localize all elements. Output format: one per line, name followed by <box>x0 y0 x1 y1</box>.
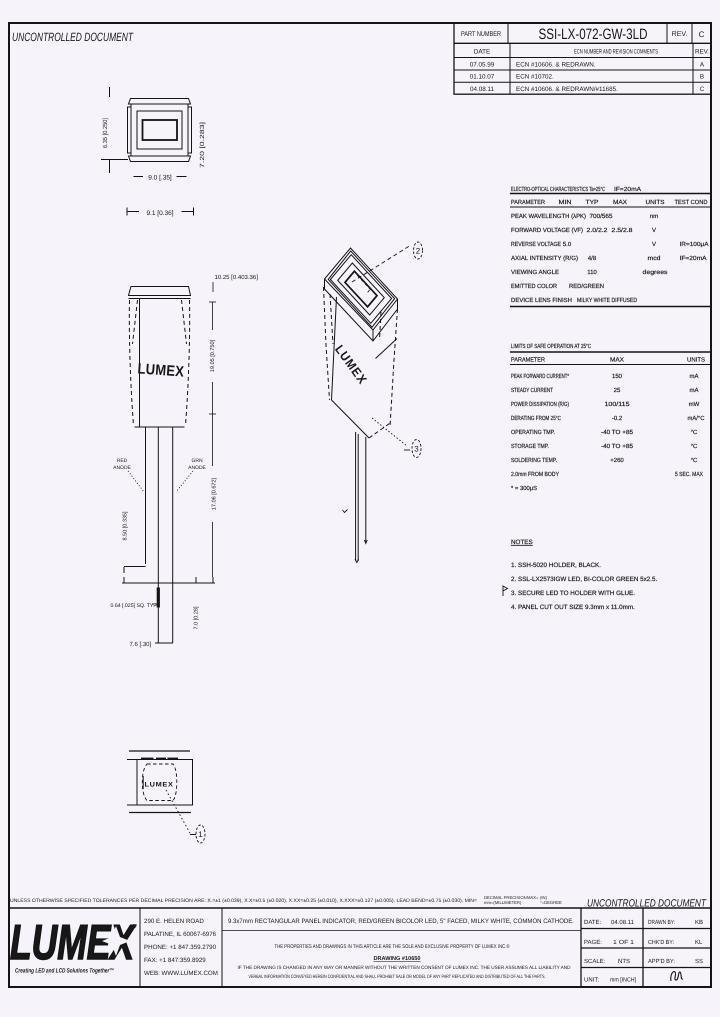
svg-text:700/565: 700/565 <box>590 213 614 220</box>
svg-text:ELECTRO-OPTICAL CHARACTERISTIC: ELECTRO-OPTICAL CHARACTERISTICS Ta=25°C <box>511 186 605 193</box>
svg-text:2.0/2.2: 2.0/2.2 <box>587 227 609 234</box>
svg-text:REV.: REV. <box>672 31 688 38</box>
svg-text:degrees: degrees <box>643 269 668 276</box>
svg-text:PARAMETER: PARAMETER <box>511 357 546 364</box>
svg-text:4/8: 4/8 <box>588 255 597 262</box>
svg-text:VIEWING ANGLE: VIEWING ANGLE <box>511 269 559 276</box>
svg-text:mW: mW <box>689 401 700 408</box>
svg-text:6.35 [0.250]: 6.35 [0.250] <box>102 118 109 148</box>
svg-text:3: 3 <box>414 445 419 454</box>
svg-text:RED/GREEN: RED/GREEN <box>569 283 604 290</box>
svg-text:C: C <box>699 30 705 39</box>
svg-text:PEAK WAVELENGTH (λPK): PEAK WAVELENGTH (λPK) <box>511 213 586 220</box>
svg-text:B: B <box>700 74 704 81</box>
svg-text:SCALE:: SCALE: <box>584 958 606 965</box>
svg-text:SOLDERING TEMP.: SOLDERING TEMP. <box>511 457 557 464</box>
svg-text:LUMEX: LUMEX <box>145 782 174 789</box>
svg-text:9.0 [.35]: 9.0 [.35] <box>148 175 172 182</box>
svg-text:DERATING FROM 25°C: DERATING FROM 25°C <box>511 415 562 422</box>
svg-text:ECN #10606. & REDRAWN/#11685.: ECN #10606. & REDRAWN/#11685. <box>516 86 618 93</box>
svg-text:110: 110 <box>587 269 597 276</box>
svg-text:UNIT:: UNIT: <box>584 977 599 984</box>
svg-text:150: 150 <box>612 373 623 380</box>
svg-text:mm [INCH]: mm [INCH] <box>610 977 636 984</box>
svg-text:GRN: GRN <box>191 458 203 464</box>
svg-text:nm: nm <box>650 214 658 220</box>
svg-text:7.0 [0.28]: 7.0 [0.28] <box>194 606 200 629</box>
svg-text:+260: +260 <box>610 457 624 464</box>
svg-text:MIN: MIN <box>559 199 572 206</box>
svg-text:UNITS: UNITS <box>687 357 705 364</box>
svg-text:100/115: 100/115 <box>605 401 631 408</box>
svg-text:1. SSH-5020 HOLDER, BLACK.: 1. SSH-5020 HOLDER, BLACK. <box>511 562 601 569</box>
svg-text:mA/°C: mA/°C <box>688 415 706 422</box>
svg-text:°C: °C <box>691 443 698 450</box>
svg-text:4. PANEL CUT OUT SIZE 9.3mm x: 4. PANEL CUT OUT SIZE 9.3mm x 11.0mm. <box>511 604 635 611</box>
svg-text:IR=100μA: IR=100μA <box>680 241 709 248</box>
svg-text:TEST COND: TEST COND <box>675 199 709 206</box>
svg-text:VERBAL INFORMATION CONVEYED HE: VERBAL INFORMATION CONVEYED HEREIN CONFI… <box>249 974 546 980</box>
svg-text:UNCONTROLLED DOCUMENT: UNCONTROLLED DOCUMENT <box>12 30 134 44</box>
svg-text:0.64 [.025] SQ. TYP.: 0.64 [.025] SQ. TYP. <box>111 603 158 609</box>
svg-text:mA: mA <box>690 387 699 394</box>
svg-text:04.08.11: 04.08.11 <box>611 919 635 926</box>
svg-text:2.0mm FROM BODY: 2.0mm FROM BODY <box>511 471 559 478</box>
svg-text:WEB: WWW.LUMEX.COM: WEB: WWW.LUMEX.COM <box>144 970 218 977</box>
svg-text:POWER DISSIPATION (R/G): POWER DISSIPATION (R/G) <box>511 401 569 408</box>
svg-text:°=DEGREE: °=DEGREE <box>540 900 562 905</box>
svg-text:9.3x7mm RECTANGULAR PANEL INDI: 9.3x7mm RECTANGULAR PANEL INDICATOR, RED… <box>228 918 574 925</box>
svg-text:TYP: TYP <box>586 199 599 206</box>
svg-text:AXIAL INTENSITY (R/G): AXIAL INTENSITY (R/G) <box>511 255 578 262</box>
svg-text:LUMEX: LUMEX <box>332 343 370 388</box>
svg-text:FAX: +1 847.359.8929: FAX: +1 847.359.8929 <box>144 957 206 964</box>
svg-text:mcd: mcd <box>648 255 661 262</box>
svg-text:9.1 [0.36]: 9.1 [0.36] <box>146 210 173 217</box>
svg-text:REV.: REV. <box>695 49 709 56</box>
svg-text:LUMEX: LUMEX <box>137 360 185 380</box>
svg-text:REVERSE VOLTAGE: REVERSE VOLTAGE <box>511 241 561 248</box>
svg-text:SSI-LX-072-GW-3LD: SSI-LX-072-GW-3LD <box>539 26 648 43</box>
svg-text:MAX=: MAX= <box>527 895 539 900</box>
svg-text:IF=20mA: IF=20mA <box>614 186 641 193</box>
svg-text:STORAGE TMP.: STORAGE TMP. <box>511 443 549 450</box>
svg-text:PART NUMBER: PART NUMBER <box>461 31 501 38</box>
svg-text:THE PROPERTIES AND DRAWINGS IN: THE PROPERTIES AND DRAWINGS IN THIS ARTI… <box>275 944 510 950</box>
svg-text:ECN NUMBER AND REVISION COMMEN: ECN NUMBER AND REVISION COMMENTS <box>574 49 658 56</box>
svg-text:°C: °C <box>691 457 698 464</box>
svg-text:* = 300μS: * = 300μS <box>511 485 537 492</box>
svg-text:5.0: 5.0 <box>563 241 572 248</box>
svg-text:®: ® <box>132 923 137 930</box>
svg-text:2: 2 <box>416 247 421 256</box>
svg-text:04.08.11: 04.08.11 <box>470 86 495 93</box>
svg-text:PEAK FORWARD CURRENT*: PEAK FORWARD CURRENT* <box>511 373 569 380</box>
svg-text:7.20 [0.283]: 7.20 [0.283] <box>199 122 206 168</box>
svg-text:MILKY WHITE DIFFUSED: MILKY WHITE DIFFUSED <box>577 297 638 304</box>
svg-text:NTS: NTS <box>618 958 630 965</box>
svg-text:3. SECURE LED TO HOLDER WITH G: 3. SECURE LED TO HOLDER WITH GLUE. <box>511 590 635 597</box>
svg-text:ANODE: ANODE <box>113 465 131 471</box>
svg-text:KB: KB <box>695 919 703 926</box>
svg-text:mm=(MILLIMETER): mm=(MILLIMETER) <box>484 900 522 905</box>
svg-text:7.6 [.30]: 7.6 [.30] <box>130 641 152 648</box>
svg-text:PAGE:: PAGE: <box>584 939 602 946</box>
svg-text:STEADY CURRENT: STEADY CURRENT <box>511 387 553 394</box>
svg-text:IF=20mA: IF=20mA <box>680 255 707 262</box>
svg-text:A: A <box>700 61 705 68</box>
svg-text:01.10.07: 01.10.07 <box>470 74 495 81</box>
svg-text:°C: °C <box>691 429 698 436</box>
svg-text:CHK'D BY:: CHK'D BY: <box>648 939 674 946</box>
svg-text:UNLESS OTHERWISE SPECIFIED TOL: UNLESS OTHERWISE SPECIFIED TOLERANCES PE… <box>10 898 477 904</box>
svg-text:SS: SS <box>695 958 703 965</box>
svg-text:LIMITS OF SAFE OPERATION AT 25: LIMITS OF SAFE OPERATION AT 25°C <box>511 343 591 350</box>
svg-text:EMITTED COLOR: EMITTED COLOR <box>511 283 558 290</box>
svg-text:07.05.99: 07.05.99 <box>470 61 495 68</box>
svg-text:290 E. HELEN ROAD: 290 E. HELEN ROAD <box>144 918 204 925</box>
svg-text:mA: mA <box>690 373 699 380</box>
svg-text:KL: KL <box>695 939 703 946</box>
svg-text:FORWARD VOLTAGE (VF): FORWARD VOLTAGE (VF) <box>511 227 583 234</box>
svg-text:10.25 [0.403.36]: 10.25 [0.403.36] <box>215 274 259 281</box>
svg-text:17.06 [0.672]: 17.06 [0.672] <box>212 477 218 510</box>
svg-text:DRAWN BY:: DRAWN BY: <box>648 919 675 926</box>
svg-text:1: 1 <box>198 830 203 839</box>
svg-text:C: C <box>700 86 705 93</box>
svg-text:DRAWING #10650: DRAWING #10650 <box>374 956 421 962</box>
svg-text:-40 TO +85: -40 TO +85 <box>601 429 634 436</box>
svg-text:PARAMETER: PARAMETER <box>511 199 546 206</box>
svg-text:MAX: MAX <box>613 199 627 206</box>
svg-text:ECN #10702.: ECN #10702. <box>516 74 554 81</box>
svg-text:19.05 [0.750]: 19.05 [0.750] <box>210 339 216 372</box>
svg-text:1 OF 1: 1 OF 1 <box>613 939 635 946</box>
svg-text:-0.2: -0.2 <box>612 415 623 422</box>
svg-text:V: V <box>652 241 656 248</box>
svg-text:2. SSL-LX2573IGW LED, BI-COLOR: 2. SSL-LX2573IGW LED, BI-COLOR GREEN 5x2… <box>511 576 658 583</box>
svg-text:RED: RED <box>117 458 128 464</box>
svg-text:APP'D BY:: APP'D BY: <box>648 958 675 965</box>
svg-text:V: V <box>652 227 656 234</box>
svg-text:-40 TO +85: -40 TO +85 <box>601 443 634 450</box>
svg-text:DATE:: DATE: <box>584 919 602 926</box>
svg-text:8.50 [0.335]: 8.50 [0.335] <box>123 511 129 541</box>
svg-text:NOTES: NOTES <box>511 539 533 546</box>
svg-text:PALATINE, IL 60067-6976: PALATINE, IL 60067-6976 <box>144 931 217 938</box>
svg-text:2.5/2.8: 2.5/2.8 <box>612 227 634 234</box>
svg-text:DEVICE LENS FINISH: DEVICE LENS FINISH <box>511 297 572 304</box>
svg-text:UNITS: UNITS <box>646 199 665 206</box>
svg-text:OPERATING TMP.: OPERATING TMP. <box>511 429 555 436</box>
svg-text:ECN #10606. & REDRAWN.: ECN #10606. & REDRAWN. <box>516 61 596 68</box>
svg-text:Creating LED and LCD Solutions: Creating LED and LCD Solutions Together™ <box>15 968 114 975</box>
svg-text:25: 25 <box>614 387 621 394</box>
svg-text:MAX: MAX <box>610 357 624 364</box>
svg-text:PHONE: +1 847.359.2790: PHONE: +1 847.359.2790 <box>144 944 217 951</box>
svg-text:5 SEC. MAX: 5 SEC. MAX <box>675 471 703 478</box>
svg-text:ANODE: ANODE <box>188 465 206 471</box>
svg-text:IF THE DRAWING IS CHANGED IN A: IF THE DRAWING IS CHANGED IN ANY WAY OR … <box>238 965 572 971</box>
svg-text:DATE: DATE <box>474 49 490 56</box>
